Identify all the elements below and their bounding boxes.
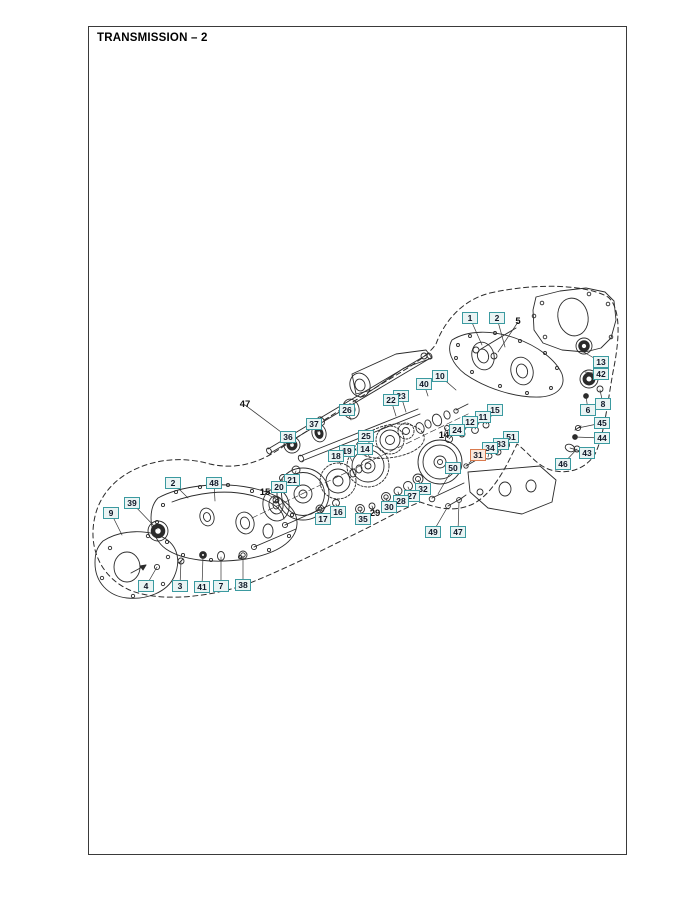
part-callout-6[interactable]: 6	[580, 404, 596, 416]
part-callout-42[interactable]: 42	[593, 368, 609, 380]
part-callout-46[interactable]: 46	[555, 458, 571, 470]
part-callout-7[interactable]: 7	[213, 580, 229, 592]
part-callout-48[interactable]: 48	[206, 477, 222, 489]
part-callout-50[interactable]: 50	[445, 462, 461, 474]
part-callout-26[interactable]: 26	[339, 404, 355, 416]
left-crankcase	[151, 483, 330, 561]
part-callout-39[interactable]: 39	[124, 497, 140, 509]
part-callout-41[interactable]: 41	[194, 581, 210, 593]
part-number-47: 47	[238, 400, 253, 410]
part-callout-30[interactable]: 30	[381, 501, 397, 513]
part-callout-44[interactable]: 44	[594, 432, 610, 444]
page-canvas: TRANSMISSION – 2	[0, 0, 688, 900]
part-callout-1[interactable]: 1	[462, 312, 478, 324]
part-callout-2[interactable]: 2	[489, 312, 505, 324]
part-callout-13[interactable]: 13	[593, 356, 609, 368]
part-callout-45[interactable]: 45	[594, 417, 610, 429]
part-callout-36[interactable]: 36	[280, 431, 296, 443]
part-callout-8[interactable]: 8	[595, 398, 611, 410]
parts-boundary-outline	[93, 286, 618, 597]
part-callout-9[interactable]: 9	[103, 507, 119, 519]
part-callout-14[interactable]: 14	[357, 443, 373, 455]
part-callout-35[interactable]: 35	[355, 513, 371, 525]
part-callout-38[interactable]: 38	[235, 579, 251, 591]
part-callout-43[interactable]: 43	[579, 447, 595, 459]
part-callout-16[interactable]: 16	[330, 506, 346, 518]
part-callout-40[interactable]: 40	[416, 378, 432, 390]
part-callout-20[interactable]: 20	[271, 481, 287, 493]
part-callout-22[interactable]: 22	[383, 394, 399, 406]
guard-bracket	[446, 466, 556, 514]
part-callout-24[interactable]: 24	[449, 424, 465, 436]
part-number-5: 5	[511, 317, 525, 327]
part-callout-47[interactable]: 47	[450, 526, 466, 538]
part-callout-10[interactable]: 10	[432, 370, 448, 382]
part-callout-31[interactable]: 31	[470, 449, 486, 461]
part-callout-49[interactable]: 49	[425, 526, 441, 538]
part-number-14: 14	[437, 431, 452, 441]
part-callout-37[interactable]: 37	[306, 418, 322, 430]
part-callout-2[interactable]: 2	[165, 477, 181, 489]
part-callout-25[interactable]: 25	[358, 430, 374, 442]
part-callout-18[interactable]: 18	[328, 450, 344, 462]
tensioner-arm	[347, 350, 432, 399]
right-cover-plate	[532, 288, 616, 352]
part-number-15: 15	[258, 488, 273, 498]
part-callout-4[interactable]: 4	[138, 580, 154, 592]
part-callout-17[interactable]: 17	[315, 513, 331, 525]
part-callout-3[interactable]: 3	[172, 580, 188, 592]
